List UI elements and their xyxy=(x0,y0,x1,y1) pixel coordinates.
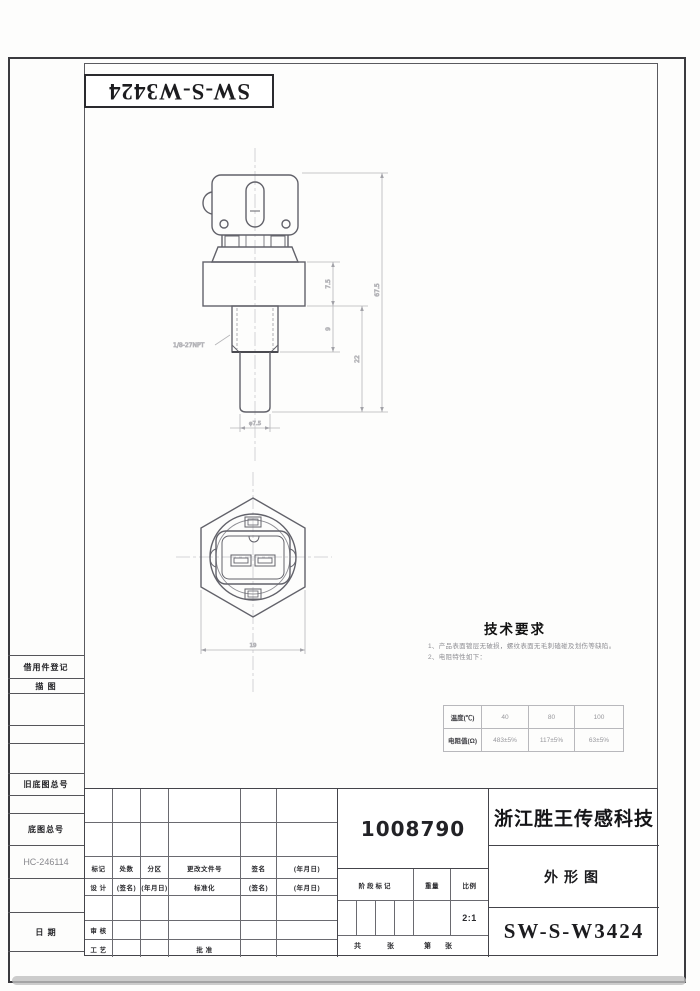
tech-requirement-item-2: 2、电阻特性如下： xyxy=(428,651,568,660)
empty-cell xyxy=(169,896,241,920)
stage-mark-box xyxy=(338,901,357,935)
margin-empty-row xyxy=(8,796,84,814)
head-screw-right xyxy=(282,220,290,228)
stage-mark-box xyxy=(376,901,395,935)
process-label: 工 艺 xyxy=(85,940,113,957)
model-number: SW-S-W3424 xyxy=(489,908,659,955)
thread-spec-label: 1/8-27NPT xyxy=(173,342,205,349)
empty-cell xyxy=(141,896,169,920)
margin-empty-row xyxy=(8,726,84,744)
empty-cell xyxy=(113,940,141,957)
sheet-index-unit: 张 xyxy=(445,941,452,951)
empty-cell xyxy=(113,896,141,920)
dim-overall-height-label: 67.5 xyxy=(374,283,381,297)
res-value: 117±5% xyxy=(529,729,575,752)
design-date-label: (年月日) xyxy=(141,879,169,895)
sheet-index-label: 第 xyxy=(424,941,431,951)
side-view xyxy=(203,148,305,462)
tech-requirements-title: 技术要求 xyxy=(455,618,575,635)
weight-header: 重量 xyxy=(414,869,451,900)
empty-cell xyxy=(169,823,241,856)
empty-cell xyxy=(241,896,277,920)
sheet-total-unit: 张 xyxy=(387,941,394,951)
dim-lower-length-label: 22 xyxy=(354,355,361,363)
sheet-total-label: 共 xyxy=(354,941,361,951)
stage-mark-box xyxy=(395,901,414,935)
weight-value-cell xyxy=(414,901,451,935)
latch-left xyxy=(225,236,239,247)
dim-tip-diameter-label: φ7.5 xyxy=(249,421,262,427)
empty-cell xyxy=(277,789,337,822)
title-block-middle: 1008790 阶段标记 重量 比例 2:1 共 张 第 张 xyxy=(338,789,489,957)
temp-row-label: 温度(℃) xyxy=(444,706,482,729)
dim-across-flats-label: 19 xyxy=(250,643,257,649)
title-block-left: 标记 处数 分区 更改文件号 签名 (年月日) 设 计 (签名) (年月日) 标… xyxy=(85,789,338,957)
empty-cell xyxy=(241,823,277,856)
side-view-dimensions: 7.5 9 22 67.5 φ7.5 1/8-27NPT xyxy=(173,173,388,432)
empty-cell xyxy=(141,823,169,856)
head-screw-left xyxy=(220,220,228,228)
pin-left xyxy=(234,558,248,563)
change-count-label: 处数 xyxy=(113,857,141,878)
change-sign-label: 签名 xyxy=(241,857,277,878)
empty-cell xyxy=(277,921,337,939)
doc-type: 外形图 xyxy=(489,846,659,908)
empty-cell xyxy=(141,921,169,939)
change-docno-label: 更改文件号 xyxy=(169,857,241,878)
margin-empty-row xyxy=(8,744,84,774)
empty-cell xyxy=(141,940,169,957)
margin-empty-row xyxy=(8,694,84,726)
design-label: 设 计 xyxy=(85,879,113,895)
empty-cell xyxy=(113,921,141,939)
standardize-label: 标准化 xyxy=(169,879,241,895)
bottom-view xyxy=(176,472,332,692)
title-block: 标记 处数 分区 更改文件号 签名 (年月日) 设 计 (签名) (年月日) 标… xyxy=(84,788,658,956)
approve-label: 批 准 xyxy=(169,940,241,957)
design-sign-label: (签名) xyxy=(113,879,141,895)
empty-cell xyxy=(141,789,169,822)
empty-cell xyxy=(85,823,113,856)
dim-hex-height-label: 7.5 xyxy=(325,279,332,289)
empty-cell xyxy=(113,823,141,856)
margin-borrow-label: 借用件登记 xyxy=(8,656,84,679)
standardize-sign-label: (签名) xyxy=(241,879,277,895)
head-side-tab xyxy=(203,192,212,214)
title-block-right: 浙江胜王传感科技 外形图 SW-S-W3424 xyxy=(489,789,659,957)
key-notch xyxy=(249,536,259,542)
review-label: 审 核 xyxy=(85,921,113,939)
latch-right xyxy=(271,236,285,247)
margin-base-label: 底图总号 xyxy=(8,814,84,846)
empty-cell xyxy=(277,896,337,920)
temp-value: 100 xyxy=(575,706,624,729)
margin-old-base-label: 旧底图总号 xyxy=(8,774,84,796)
empty-cell xyxy=(241,940,277,957)
thread-leader-line xyxy=(215,335,230,345)
res-value: 483±5% xyxy=(482,729,529,752)
change-zone-label: 分区 xyxy=(141,857,169,878)
res-row-label: 电阻值(Ω) xyxy=(444,729,482,752)
margin-base-number: HC-246114 xyxy=(8,846,84,879)
empty-cell xyxy=(277,940,337,957)
empty-cell xyxy=(85,896,113,920)
pin-right xyxy=(258,558,272,563)
temp-value: 80 xyxy=(529,706,575,729)
scale-value: 2:1 xyxy=(451,901,488,935)
stage-mark-header: 阶段标记 xyxy=(338,869,414,900)
resistance-table: 温度(℃) 40 80 100 电阻值(Ω) 483±5% 117±5% 63±… xyxy=(443,705,624,752)
margin-strip: 借用件登记 描 图 旧底图总号 底图总号 HC-246114 日 期 xyxy=(8,655,84,951)
tech-requirement-item-1: 1、产品表面镀层无破损，螺纹表面无毛刺磕碰及划伤等缺陷。 xyxy=(428,640,666,649)
scale-header: 比例 xyxy=(451,869,488,900)
temp-value: 40 xyxy=(482,706,529,729)
margin-date-label: 日 期 xyxy=(8,913,84,952)
empty-cell xyxy=(85,789,113,822)
empty-cell xyxy=(241,789,277,822)
stage-mark-box xyxy=(357,901,376,935)
empty-cell xyxy=(169,789,241,822)
company-name: 浙江胜王传感科技 xyxy=(489,789,659,846)
sheet-count-row: 共 张 第 张 xyxy=(338,936,488,956)
empty-cell xyxy=(277,823,337,856)
change-mark-label: 标记 xyxy=(85,857,113,878)
table-row: 电阻值(Ω) 483±5% 117±5% 63±5% xyxy=(444,729,624,752)
hex-body xyxy=(203,262,305,306)
empty-cell xyxy=(113,789,141,822)
margin-trace-label: 描 图 xyxy=(8,679,84,694)
change-date-label: (年月日) xyxy=(277,857,337,878)
margin-empty-row xyxy=(8,879,84,913)
dim-thread-length-label: 9 xyxy=(325,327,332,331)
empty-cell xyxy=(169,921,241,939)
part-number: 1008790 xyxy=(338,789,488,869)
res-value: 63±5% xyxy=(575,729,624,752)
empty-cell xyxy=(241,921,277,939)
table-row: 温度(℃) 40 80 100 xyxy=(444,706,624,729)
standardize-date-label: (年月日) xyxy=(277,879,337,895)
drawing-sheet: SW-S-W3424 xyxy=(0,0,700,991)
